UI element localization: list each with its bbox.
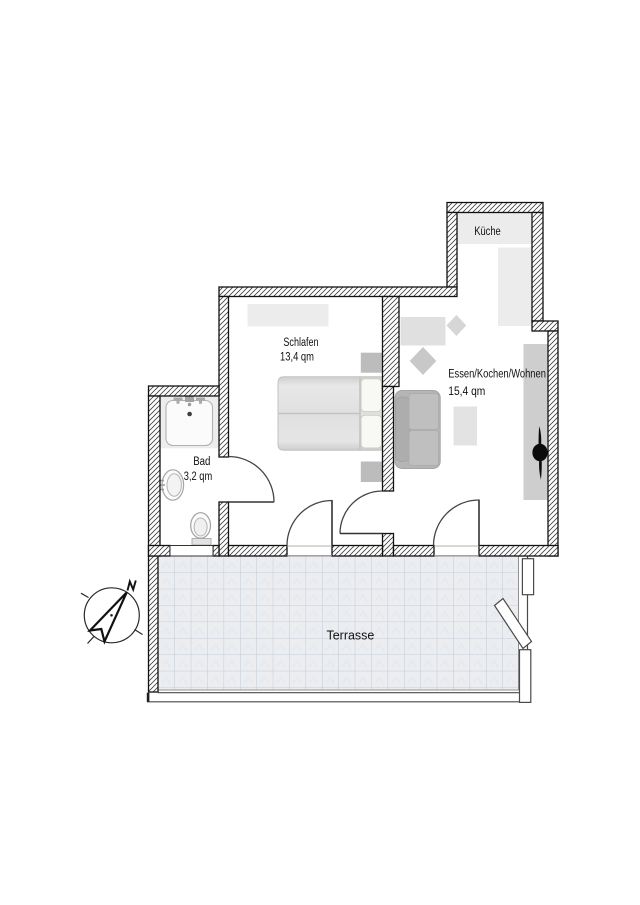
svg-text:Schlafen: Schlafen (283, 337, 318, 349)
svg-text:Terrasse: Terrasse (327, 628, 375, 643)
svg-text:Küche: Küche (474, 226, 501, 238)
svg-text:Essen/Kochen/Wohnen: Essen/Kochen/Wohnen (448, 369, 546, 381)
svg-text:Bad: Bad (193, 456, 210, 468)
svg-text:15,4 qm: 15,4 qm (448, 386, 485, 398)
svg-text:3,2 qm: 3,2 qm (184, 471, 212, 483)
svg-text:13,4 qm: 13,4 qm (280, 351, 314, 363)
